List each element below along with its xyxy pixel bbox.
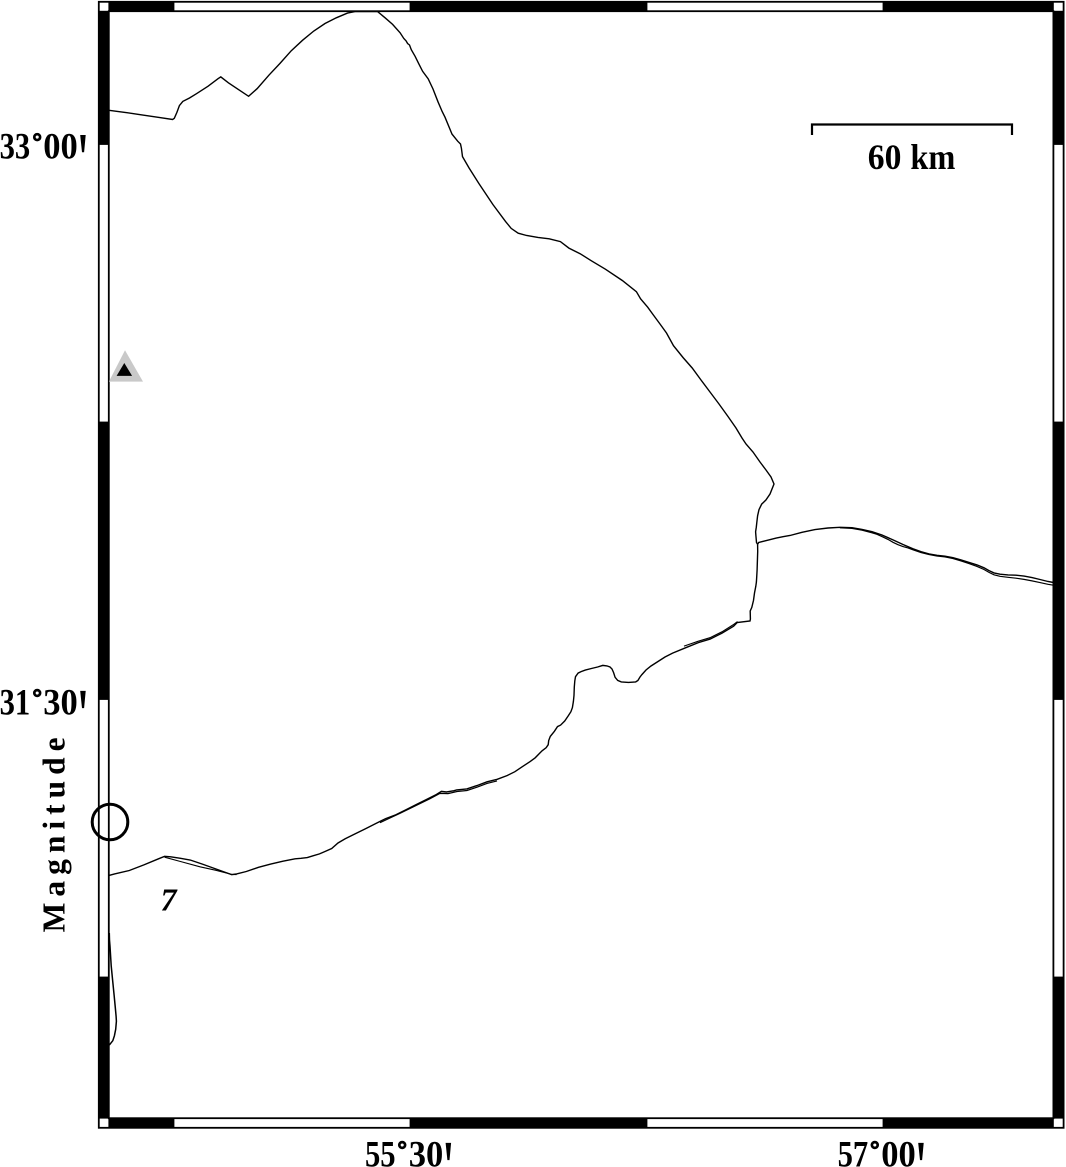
svg-text:30: 30 xyxy=(43,682,78,723)
svg-text:km: km xyxy=(910,137,955,177)
svg-text:60: 60 xyxy=(868,137,902,177)
svg-text:57: 57 xyxy=(838,1134,869,1167)
svg-text:00: 00 xyxy=(881,1134,916,1167)
svg-text:55: 55 xyxy=(365,1134,396,1167)
svg-text:33: 33 xyxy=(0,126,30,167)
svg-text:Magnitude: Magnitude xyxy=(36,731,71,932)
svg-text:31: 31 xyxy=(0,682,30,723)
svg-text:7: 7 xyxy=(161,881,179,917)
svg-text:30: 30 xyxy=(409,1134,444,1167)
svg-text:00: 00 xyxy=(43,126,78,167)
